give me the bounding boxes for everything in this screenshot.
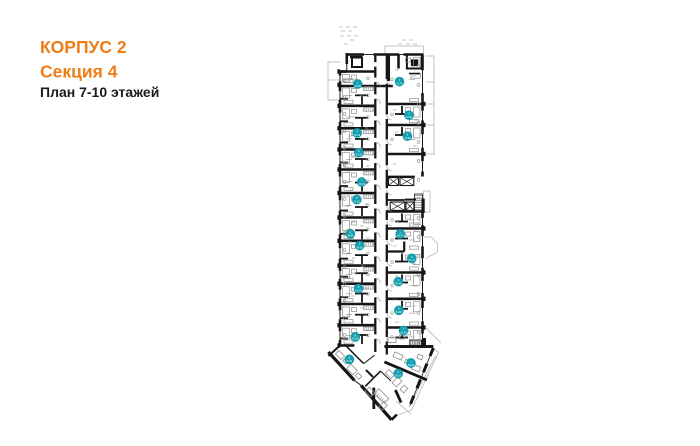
svg-text:49.37: 49.37 xyxy=(397,235,404,238)
svg-text:45.55: 45.55 xyxy=(356,154,363,157)
svg-text:59.37: 59.37 xyxy=(395,374,402,377)
svg-text:55.55: 55.55 xyxy=(401,331,408,334)
svg-text:54.82: 54.82 xyxy=(396,311,403,314)
svg-text:58.64: 58.64 xyxy=(408,364,415,367)
svg-text:52.46: 52.46 xyxy=(395,283,402,286)
svg-text:41.73: 41.73 xyxy=(397,82,404,85)
svg-text:Секция 4: Секция 4 xyxy=(40,62,118,82)
svg-text:КОРПУС 2: КОРПУС 2 xyxy=(40,37,127,57)
svg-text:51.73: 51.73 xyxy=(409,259,416,262)
svg-text:57.91: 57.91 xyxy=(346,360,353,363)
svg-text:47.91: 47.91 xyxy=(354,200,361,203)
svg-text:56.28: 56.28 xyxy=(352,338,359,341)
svg-text:План 7-10 этажей: План 7-10 этажей xyxy=(40,84,159,100)
svg-text:44.82: 44.82 xyxy=(404,137,411,140)
svg-text:43.19: 43.19 xyxy=(354,134,361,137)
svg-text:46.28: 46.28 xyxy=(359,183,366,186)
svg-text:53.19: 53.19 xyxy=(356,289,363,292)
svg-text:48.64: 48.64 xyxy=(347,235,354,238)
svg-text:50.00: 50.00 xyxy=(357,246,364,249)
svg-text:40.00: 40.00 xyxy=(355,85,362,88)
svg-text:42.46: 42.46 xyxy=(406,116,413,119)
